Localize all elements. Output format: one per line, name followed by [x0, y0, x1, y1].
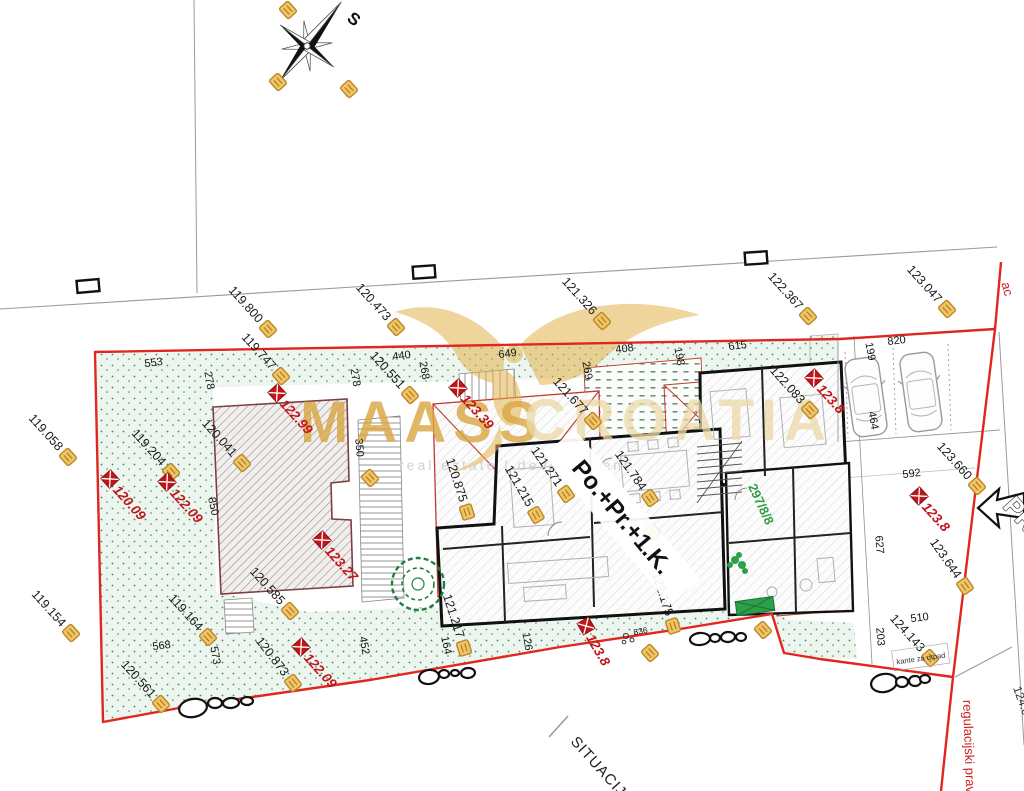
- utility-box: [745, 251, 768, 265]
- dimension-text: 649: [498, 347, 518, 361]
- elevation-marker-icon: [641, 644, 659, 662]
- elevation-value: 123.047: [904, 263, 945, 306]
- elevation-value: 123.644: [927, 536, 964, 581]
- dimension-text: 820: [887, 334, 907, 348]
- car-icon: [895, 350, 947, 433]
- rock-icon: [721, 631, 736, 642]
- dimension-text: 510: [910, 611, 930, 625]
- rock-icon: [870, 672, 899, 694]
- site-plan-drawing: S: [0, 0, 1024, 791]
- dimension-text: 568: [152, 639, 172, 653]
- rock-icon: [920, 675, 930, 683]
- compass-north-label: S: [344, 8, 365, 30]
- rock-icon: [461, 667, 476, 678]
- spot-height-value: 123.8: [919, 499, 953, 535]
- watermark-text-maass: MAASS: [300, 390, 544, 455]
- rock-icon: [223, 697, 240, 708]
- rock-icon: [710, 634, 720, 642]
- edge-elevation: 124.05: [1010, 684, 1024, 724]
- utility-box: [413, 265, 436, 279]
- rock-icon: [896, 677, 908, 687]
- elevation-marker-icon: 119.154: [29, 587, 81, 643]
- elevation-marker-icon: 120.473: [353, 281, 406, 337]
- rock-icon: [690, 632, 711, 646]
- rock-icon: [439, 670, 449, 678]
- rock-icon: [208, 698, 222, 708]
- rock-icon: [241, 697, 253, 705]
- elevation-marker-icon: [279, 1, 297, 19]
- elevation-marker-icon: 119.800: [226, 283, 278, 339]
- dimension-text: 278: [347, 367, 362, 387]
- svg-text:kante za otpad: kante za otpad: [896, 651, 946, 667]
- elevation-value: 119.058: [26, 411, 66, 453]
- elevation-value: 123.660: [934, 440, 975, 483]
- rock-icon: [736, 633, 746, 641]
- dimension-text: 350: [352, 438, 366, 457]
- elevation-marker-icon: 122.367: [765, 270, 818, 326]
- elevation-marker-icon: 123.047: [904, 263, 957, 319]
- elevation-value: 119.800: [226, 283, 266, 325]
- sheet-title: SITUACIJA: [567, 733, 637, 791]
- elevation-marker-icon: 119.058: [26, 411, 78, 467]
- site-plan-sheet: S: [0, 0, 1024, 791]
- spot-height-marker-icon: 123.8: [908, 487, 953, 535]
- elevation-marker-icon: [340, 80, 358, 98]
- title-tick: [549, 716, 568, 737]
- elevation-value: 122.367: [765, 270, 806, 313]
- rock-icon: [451, 670, 459, 676]
- dimension-text: 440: [392, 349, 412, 363]
- elevation-value: 119.154: [29, 587, 69, 629]
- dimension-text: 553: [144, 356, 164, 370]
- elevation-value: 120.473: [353, 281, 394, 324]
- elevation-marker-icon: [754, 621, 772, 639]
- dimension-text: 627: [872, 535, 886, 554]
- dimension-text: 592: [902, 467, 922, 481]
- car-icon: [840, 355, 892, 438]
- dimension-text: 408: [615, 342, 635, 356]
- regulation-label: regulacijski pravac: [960, 700, 979, 791]
- dimension-text: 836: [633, 625, 649, 637]
- dimension-text: 203: [873, 627, 887, 646]
- street-name-suffix: ac: [998, 280, 1016, 298]
- dimension-text: 615: [728, 339, 748, 353]
- utility-box: [77, 279, 100, 293]
